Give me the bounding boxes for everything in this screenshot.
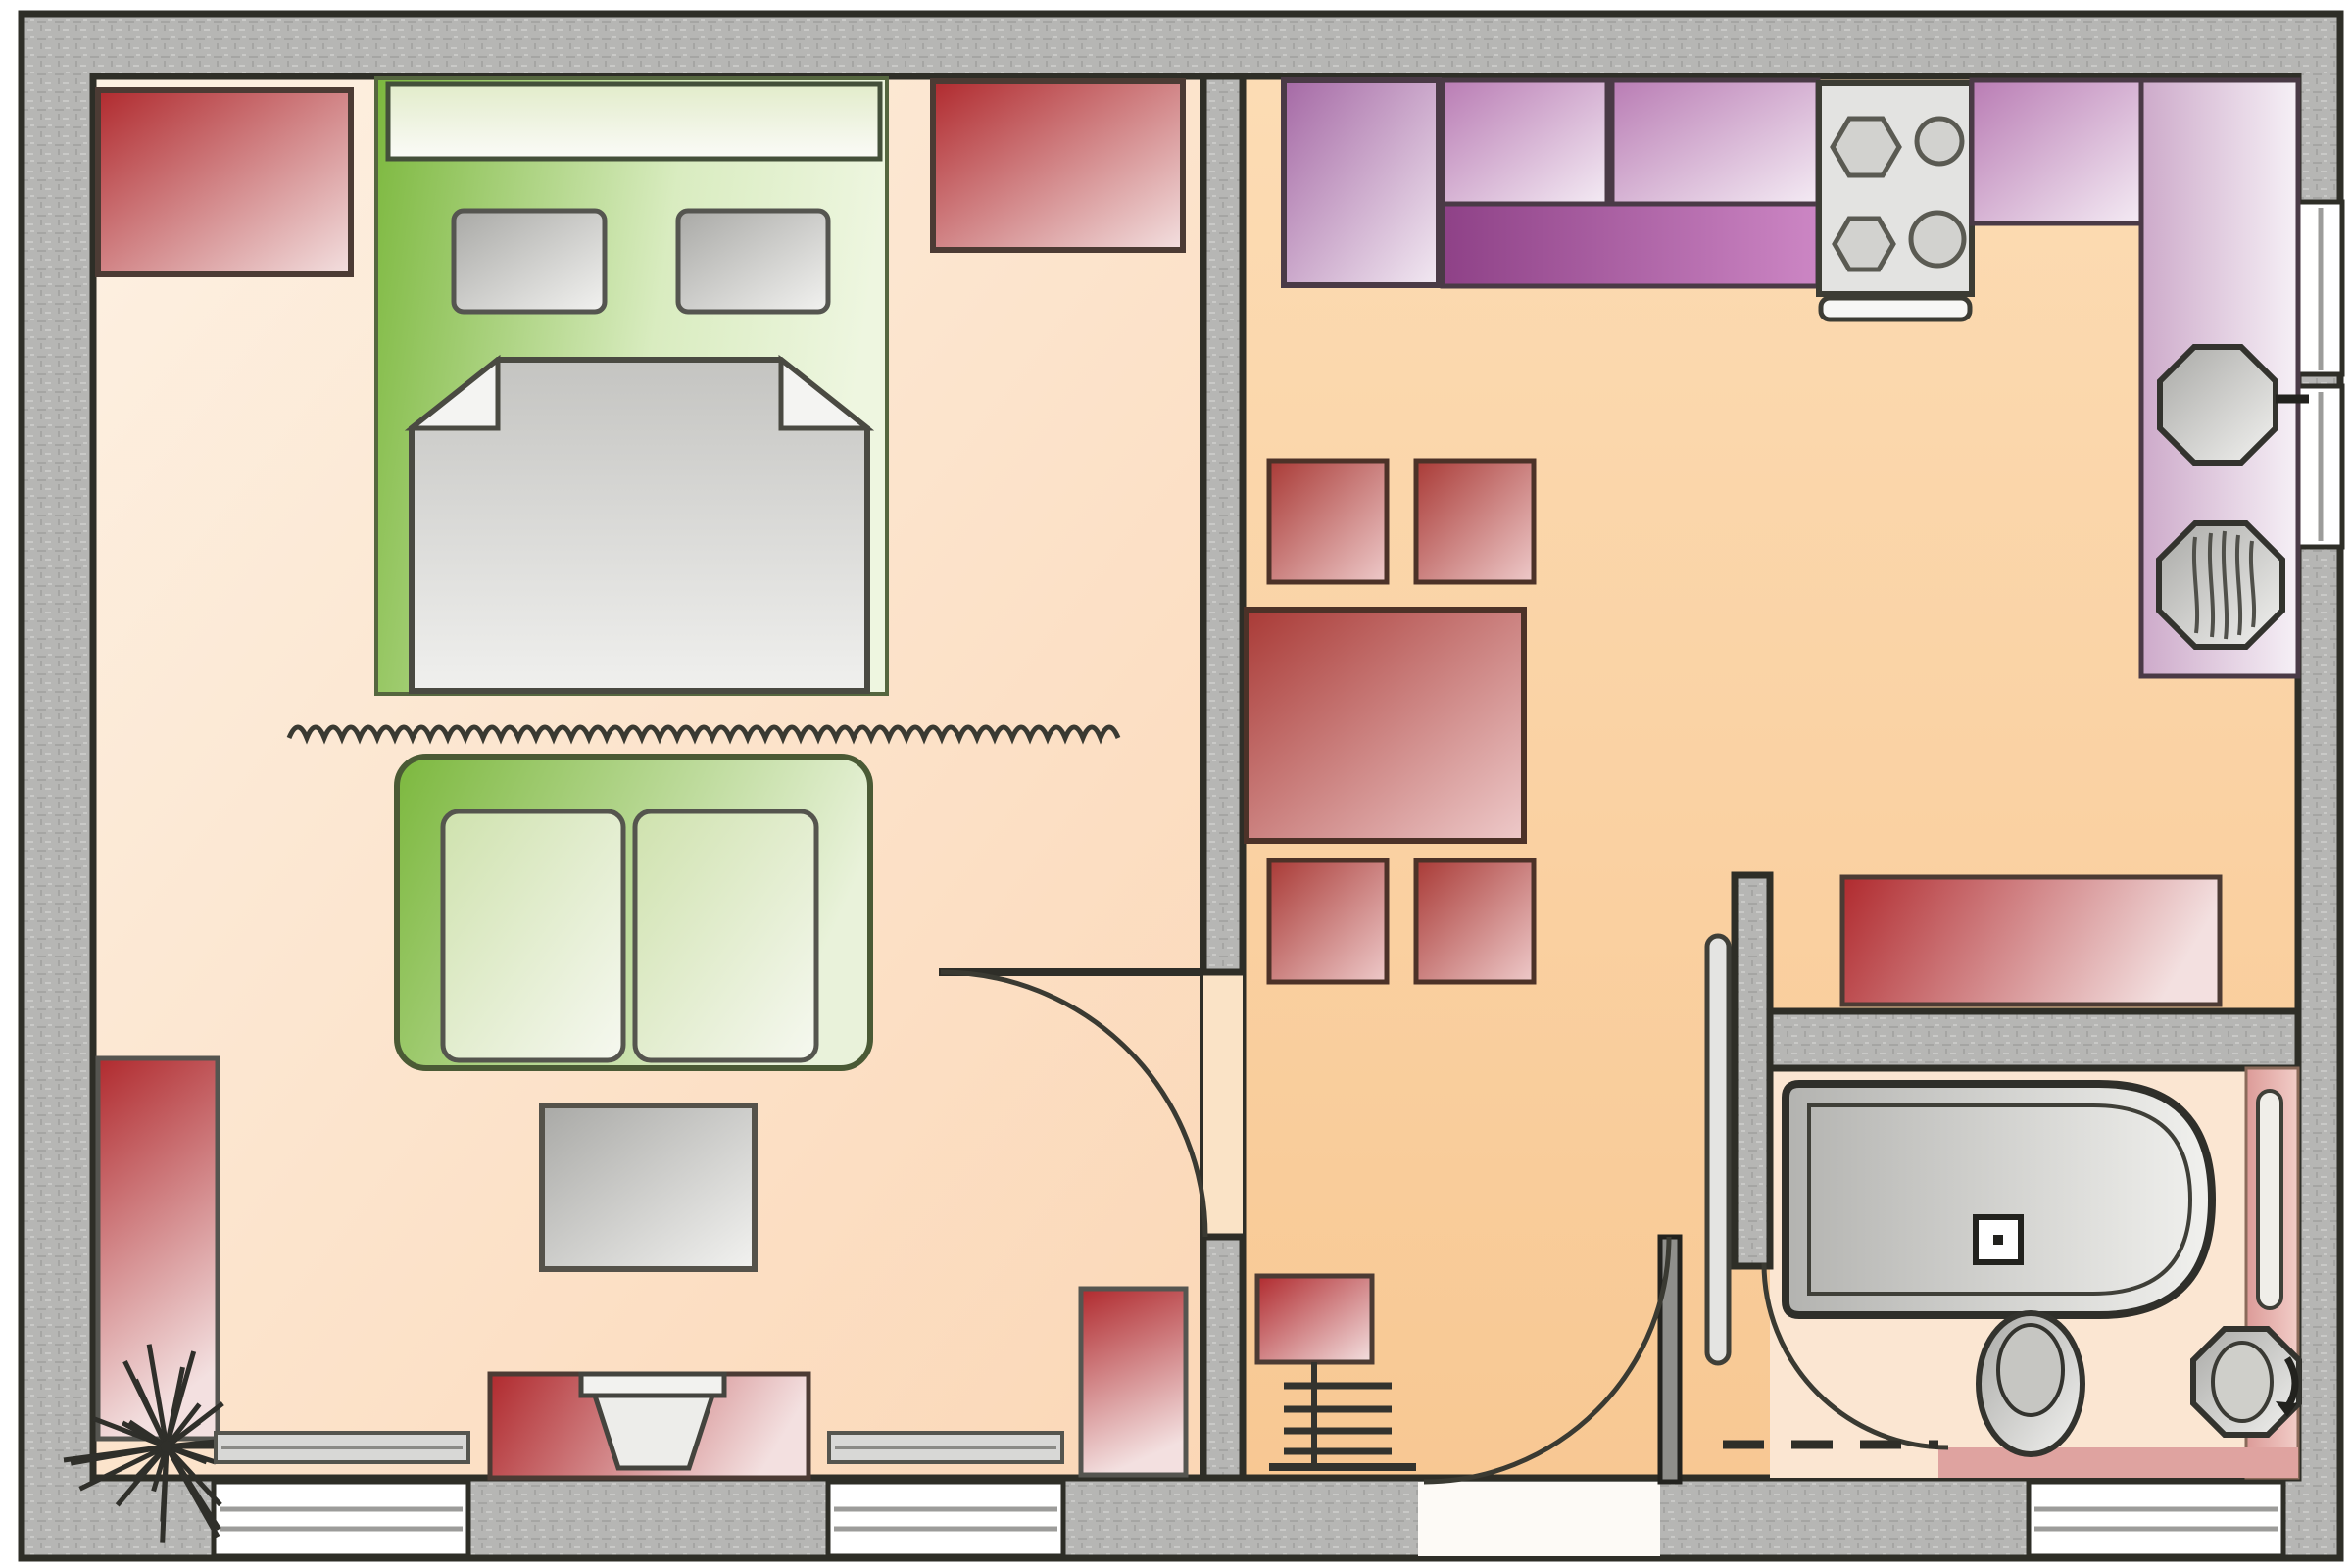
stove-front-rail <box>1821 298 1970 319</box>
dining-chair <box>1269 461 1387 582</box>
fridge-cabinet <box>1284 80 1439 285</box>
wardrobe-top-left <box>98 90 351 274</box>
entrance-opening <box>1418 1482 1660 1556</box>
bathroom-top-wall <box>1761 1011 2298 1068</box>
pillow-left <box>454 211 605 312</box>
bathtub <box>1786 1084 2212 1315</box>
sofa-cushion-left <box>443 811 623 1060</box>
pillow-right <box>678 211 828 312</box>
burner-icon <box>1833 119 1899 175</box>
dining-table <box>1247 610 1524 841</box>
sofa <box>397 757 870 1068</box>
dining-chair <box>1416 860 1534 982</box>
burner-icon <box>1835 219 1893 269</box>
cabinet-by-door <box>1081 1289 1186 1475</box>
planter-rim <box>581 1374 724 1396</box>
dividing-wall-upper <box>1203 76 1243 972</box>
window-bottom-mid <box>828 1482 1063 1556</box>
coat-rack-shelf <box>1257 1276 1372 1362</box>
pink-ledge-bottom <box>1938 1447 2298 1478</box>
stove <box>1819 83 1972 319</box>
counter-strip <box>1443 204 1818 286</box>
bathroom-partition-wall <box>1735 875 1770 1266</box>
toilet <box>1979 1313 2082 1454</box>
wardrobe-top-right <box>933 81 1183 250</box>
room-door-opening <box>1203 972 1243 1237</box>
window-bottom-right <box>2029 1482 2283 1556</box>
dining-chair <box>1269 860 1387 982</box>
sink-drainer <box>2159 523 2282 647</box>
window-bench-left <box>216 1433 468 1462</box>
burner-icon <box>1911 213 1964 266</box>
planter-pot <box>595 1396 712 1468</box>
bed-headboard <box>388 84 880 159</box>
upper-cabinet-2 <box>1612 80 1818 204</box>
burner-icon <box>1917 119 1962 164</box>
towel-radiator <box>2258 1091 2281 1308</box>
floor-plan-canvas <box>0 0 2352 1568</box>
shelf-over-bathroom <box>1842 877 2220 1004</box>
sofa-cushion-right <box>635 811 816 1060</box>
dining-chair <box>1416 461 1534 582</box>
hall-radiator <box>1707 936 1729 1363</box>
dividing-wall-lower <box>1203 1237 1243 1478</box>
window-right-wall <box>2298 202 2342 547</box>
floor-plan <box>0 0 2352 1568</box>
upper-cabinet-1 <box>1443 80 1607 204</box>
wash-basin <box>2193 1329 2299 1435</box>
window-bench-right <box>829 1433 1062 1462</box>
window-bottom-left <box>214 1482 468 1556</box>
sideboard-with-planter <box>490 1374 808 1478</box>
entrance-door-leaf <box>1660 1237 1680 1482</box>
counter-top-right <box>1972 80 2141 223</box>
coffee-table <box>542 1105 755 1269</box>
